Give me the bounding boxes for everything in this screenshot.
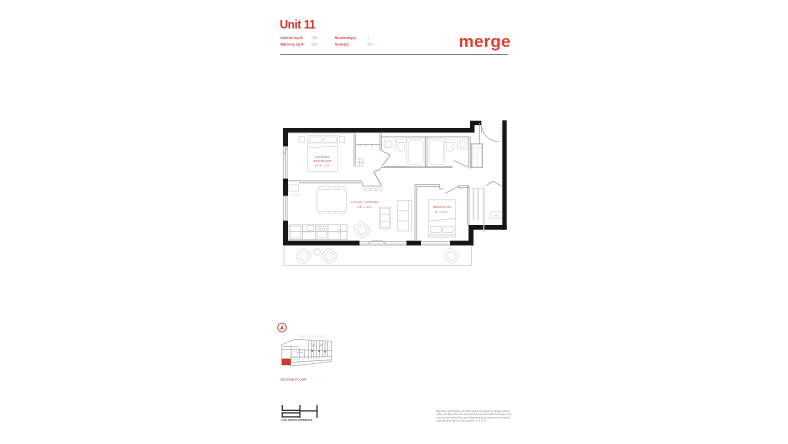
svg-text:Bedroom(s):: Bedroom(s): xyxy=(335,36,357,40)
svg-text:CADILLAC AVENUE: CADILLAC AVENUE xyxy=(298,336,325,339)
svg-text:108: 108 xyxy=(311,43,317,47)
svg-text:Balcony sq.ft:: Balcony sq.ft: xyxy=(281,43,305,47)
svg-text:9' x 9'2": 9' x 9'2" xyxy=(435,210,448,214)
svg-text:2: 2 xyxy=(367,36,369,40)
svg-text:201: 201 xyxy=(367,43,373,47)
svg-text:LIVING / DINING: LIVING / DINING xyxy=(351,200,379,204)
svg-text:11'6" x 9': 11'6" x 9' xyxy=(315,163,330,167)
svg-text:788: 788 xyxy=(311,36,317,40)
svg-text:Unit 11: Unit 11 xyxy=(280,20,317,32)
svg-text:BEDROOM: BEDROOM xyxy=(433,205,451,209)
svg-text:W/D: W/D xyxy=(494,214,499,217)
svg-text:16' x 22': 16' x 22' xyxy=(358,205,372,209)
svg-text:SECOND FLOOR: SECOND FLOOR xyxy=(281,378,308,382)
svg-text:Suite(s):: Suite(s): xyxy=(335,43,350,47)
svg-text:Interior sq.ft:: Interior sq.ft: xyxy=(281,36,304,40)
svg-text:merge: merge xyxy=(459,32,511,51)
svg-text:edge and may vary by suite loc: edge and may vary by suite location. E. … xyxy=(436,420,486,423)
svg-text:LCH DEVELOPMENTS: LCH DEVELOPMENTS xyxy=(281,418,312,422)
